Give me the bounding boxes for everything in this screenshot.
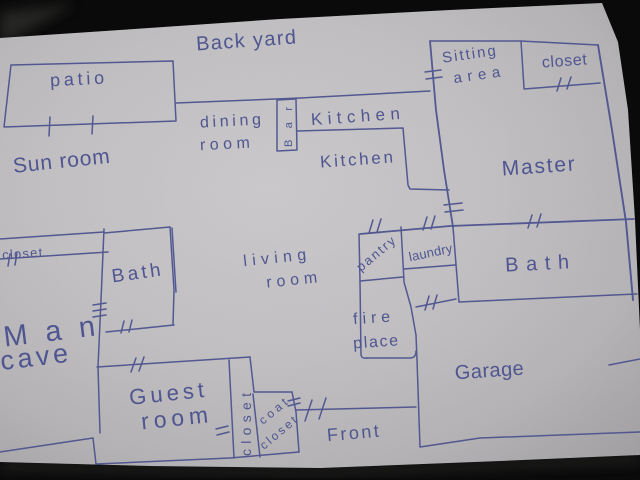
svg-text:closet: closet (2, 245, 43, 263)
svg-text:patio: patio (50, 68, 105, 91)
svg-text:closet: closet (541, 51, 588, 71)
svg-text:place: place (353, 332, 399, 352)
